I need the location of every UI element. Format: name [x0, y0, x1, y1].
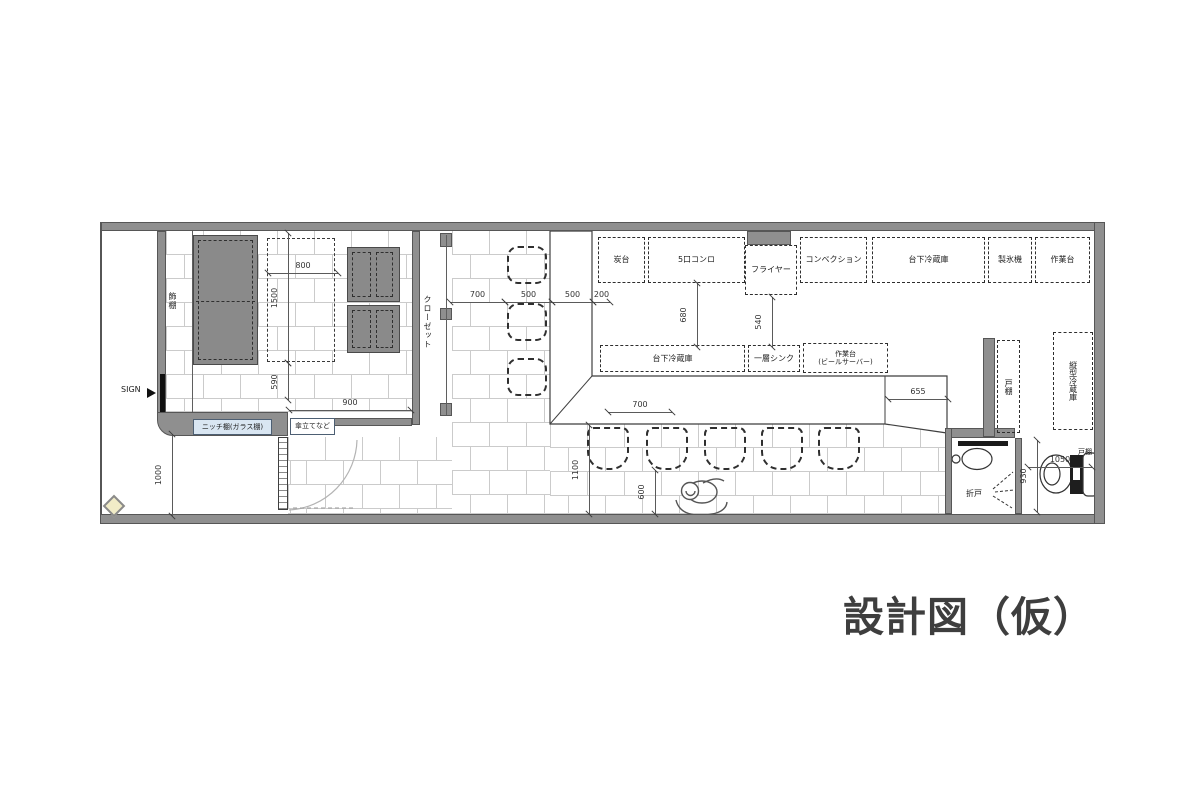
tile-floor-layer: [0, 0, 1200, 800]
door-swing-arc: [289, 440, 357, 510]
plan-drawing-layer: [0, 0, 1200, 800]
dimension-tick: [548, 298, 555, 305]
corridor-floor: [452, 375, 550, 399]
toilet-icon: [1040, 453, 1098, 496]
bar-counter: [550, 231, 947, 433]
equipment-box: 戸棚: [997, 340, 1020, 433]
dimension-tick: [768, 343, 775, 350]
dimension-tick: [651, 466, 658, 473]
dimension-line: [772, 297, 773, 347]
dimension-tick: [944, 395, 951, 402]
table-2-outline: [352, 252, 371, 297]
dimension-label: 900: [342, 399, 357, 407]
dimension-label: 200: [594, 291, 609, 299]
labels-layer: SIGN飾棚クローゼットニッチ棚(ガラス棚)傘立てなど折戸戸棚: [0, 0, 1200, 800]
dimension-label: 680: [680, 307, 688, 322]
table-3-outline: [352, 310, 371, 348]
dimension-tick: [1033, 436, 1040, 443]
rooms-divider-wall: [1015, 438, 1022, 514]
equipment-box: コンベクション: [800, 237, 867, 283]
dimension-tick: [168, 430, 175, 437]
equipment-box: 縦型冷蔵庫: [1053, 332, 1093, 430]
corridor-floor: [452, 495, 550, 514]
corridor-floor: [452, 231, 550, 255]
corridor-floor: [452, 447, 550, 471]
top-wall: [100, 222, 1105, 231]
chair: [507, 303, 547, 341]
drawing-title: 設計図（仮）: [843, 583, 1103, 643]
chair: [507, 246, 547, 284]
sign-arrow-icon: [147, 388, 156, 398]
equipment-box: フライヤー: [745, 245, 797, 295]
entrance-door: [278, 437, 288, 510]
seating-room-floor: [166, 375, 412, 399]
chair: [507, 358, 547, 396]
entry-front-bar: [332, 418, 412, 426]
dimension-label: 540: [755, 314, 763, 329]
dimension-label: 800: [295, 262, 310, 270]
dimension-line: [288, 233, 289, 363]
dimension-label: 1050: [1050, 456, 1070, 464]
toilet-cupboard-label: 戸棚: [1078, 449, 1092, 456]
closet-block-top: [440, 233, 452, 247]
dimension-label: 500: [521, 291, 536, 299]
dimension-line: [589, 425, 590, 514]
person-icon: [676, 479, 727, 515]
left-boundary: [100, 222, 102, 514]
dimension-label: 1000: [155, 465, 163, 485]
equipment-box: 作業台 (ビールサーバー): [803, 343, 888, 373]
dimension-tick: [693, 279, 700, 286]
closet-door-line: [446, 235, 447, 415]
dimension-line: [288, 363, 289, 400]
table-2: [347, 247, 400, 302]
dimension-tick: [407, 406, 414, 413]
floor-plan-canvas: 炭台5口コンロフライヤーコンベクション台下冷蔵庫製氷機作業台台下冷蔵庫一層シンク…: [0, 0, 1200, 800]
dining-floor: [550, 424, 945, 448]
washroom-left-wall: [945, 428, 952, 514]
sign-wall: [157, 231, 166, 413]
dimension-label: 500: [565, 291, 580, 299]
dimension-tick: [1024, 463, 1031, 470]
dimension-label: 1500: [271, 288, 279, 308]
closet-block-bottom: [440, 403, 452, 416]
dimension-label: 700: [470, 291, 485, 299]
walls-layer: [0, 0, 1200, 800]
chair: [761, 427, 803, 470]
corridor-floor: [452, 399, 550, 423]
dimension-tick: [334, 269, 341, 276]
seating-room-floor: [166, 303, 412, 327]
folding-door-label: 折戸: [966, 490, 982, 498]
dimension-tick: [501, 298, 508, 305]
equipment-box: 炭台: [598, 237, 645, 283]
dimension-line: [697, 283, 698, 347]
dimension-tick: [651, 510, 658, 517]
dimension-line: [450, 302, 505, 303]
dimensions-layer: 8009007005005002006557001050150059010006…: [0, 0, 1200, 800]
dimension-tick: [264, 269, 271, 276]
dimension-tick: [884, 395, 891, 402]
table-2-outline2: [376, 252, 393, 297]
sign-bar: [160, 374, 165, 412]
dimension-line: [268, 273, 338, 274]
dimension-tick: [589, 298, 596, 305]
corridor-floor: [452, 303, 550, 327]
dining-floor: [550, 496, 945, 514]
seating-room-floor: [166, 327, 412, 351]
dimension-tick: [285, 406, 292, 413]
dimension-line: [608, 412, 672, 413]
dimension-label: 700: [632, 401, 647, 409]
dimension-line: [1028, 467, 1092, 468]
dimension-line: [505, 302, 552, 303]
dimension-tick: [168, 512, 175, 519]
entry-floor: [288, 485, 452, 509]
shelf-label: 飾棚: [168, 292, 176, 310]
dimension-line: [888, 399, 948, 400]
shelf-strip-line: [192, 231, 193, 412]
dimension-label: 655: [910, 388, 925, 396]
chair: [704, 427, 746, 470]
reserved-space: [267, 238, 335, 362]
cupboard-wall: [983, 338, 995, 437]
dining-floor: [550, 472, 945, 496]
dimension-tick: [284, 229, 291, 236]
diamond-marker-icon: [103, 495, 126, 518]
corridor-floor: [452, 423, 550, 447]
seating-room-floor: [166, 231, 412, 255]
corridor-floor: [452, 255, 550, 279]
washroom-top-wall: [945, 428, 1015, 438]
dimension-line: [289, 410, 411, 411]
table-3: [347, 305, 400, 353]
niche-label: ニッチ棚(ガラス棚): [193, 419, 272, 435]
dimension-tick: [589, 298, 596, 305]
entry-floor: [288, 461, 452, 485]
chair: [587, 427, 629, 470]
dimension-tick: [668, 408, 675, 415]
dimension-label: 600: [638, 484, 646, 499]
chair: [646, 427, 688, 470]
equipment-box: 一層シンク: [748, 345, 800, 372]
dimension-tick: [1088, 463, 1095, 470]
large-table-outline: [198, 240, 253, 360]
dimension-line: [593, 302, 610, 303]
equipment-box: 台下冷蔵庫: [872, 237, 985, 283]
dimension-tick: [548, 298, 555, 305]
corridor-floor: [452, 279, 550, 303]
folding-door-icon: [993, 472, 1014, 508]
dimension-label: 930: [1020, 468, 1028, 483]
dimension-tick: [284, 359, 291, 366]
dimension-tick: [284, 396, 291, 403]
basin-counter-bar: [958, 441, 1008, 446]
fryer-recess: [747, 231, 791, 245]
sign-label: SIGN: [121, 386, 141, 394]
dimension-tick: [768, 293, 775, 300]
dimension-line: [172, 434, 173, 516]
equipment-box: 製氷機: [988, 237, 1032, 283]
dimension-tick: [284, 359, 291, 366]
seating-room-floor: [166, 399, 412, 412]
chair: [818, 427, 860, 470]
entry-floor: [288, 509, 452, 514]
umbrella-label: 傘立てなど: [290, 418, 335, 435]
dimension-tick: [693, 343, 700, 350]
dimension-label: 590: [271, 374, 279, 389]
dimension-line: [1037, 440, 1038, 512]
bottom-wall: [100, 514, 1105, 524]
washbasin-icon: [952, 449, 992, 470]
dimension-tick: [585, 510, 592, 517]
large-table-divider: [196, 301, 255, 302]
closet-block-mid: [440, 308, 452, 320]
dimension-tick: [604, 408, 611, 415]
seating-room-floor: [166, 279, 412, 303]
furniture-layer: 炭台5口コンロフライヤーコンベクション台下冷蔵庫製氷機作業台台下冷蔵庫一層シンク…: [0, 0, 1200, 800]
dimension-tick: [501, 298, 508, 305]
dimension-line: [552, 302, 593, 303]
corridor-floor: [452, 327, 550, 351]
dimension-tick: [446, 298, 453, 305]
right-wall: [1094, 222, 1105, 524]
closet-left-wall: [412, 231, 420, 425]
seating-room-floor: [166, 351, 412, 375]
dimension-tick: [585, 421, 592, 428]
large-table: [193, 235, 258, 365]
table-3-outline2: [376, 310, 393, 348]
equipment-box: 作業台: [1035, 237, 1090, 283]
dimension-label: 1100: [572, 459, 580, 479]
seating-room-floor: [166, 255, 412, 279]
corridor-floor: [452, 471, 550, 495]
entry-wall-band: [157, 412, 288, 436]
closet-label: クローゼット: [423, 295, 431, 349]
dimension-tick: [606, 298, 613, 305]
equipment-box: 5口コンロ: [648, 237, 745, 283]
dimension-tick: [1033, 508, 1040, 515]
dining-floor: [550, 448, 945, 472]
equipment-box: 台下冷蔵庫: [600, 345, 745, 372]
dimension-line: [655, 470, 656, 514]
corridor-floor: [452, 351, 550, 375]
entry-floor: [288, 437, 452, 461]
